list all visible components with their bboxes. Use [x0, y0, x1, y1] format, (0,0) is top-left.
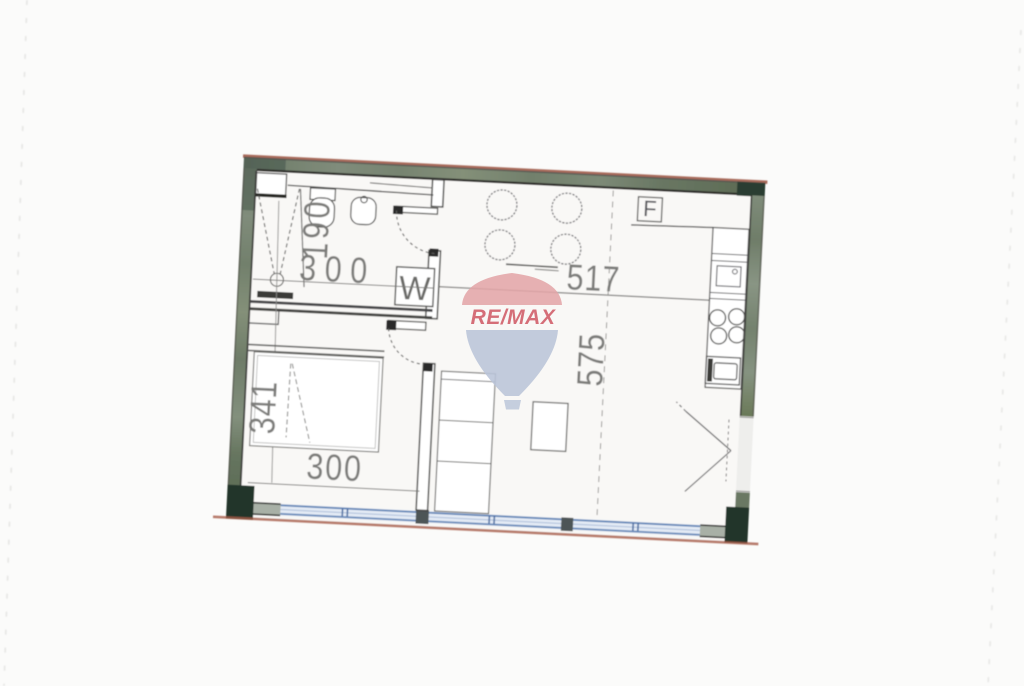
- svg-text:RE/MAX: RE/MAX: [471, 306, 557, 329]
- svg-text:575: 575: [571, 332, 613, 388]
- svg-text:341: 341: [243, 380, 285, 436]
- svg-text:F: F: [643, 196, 658, 222]
- svg-text:300: 300: [298, 249, 376, 293]
- svg-text:300: 300: [306, 447, 364, 490]
